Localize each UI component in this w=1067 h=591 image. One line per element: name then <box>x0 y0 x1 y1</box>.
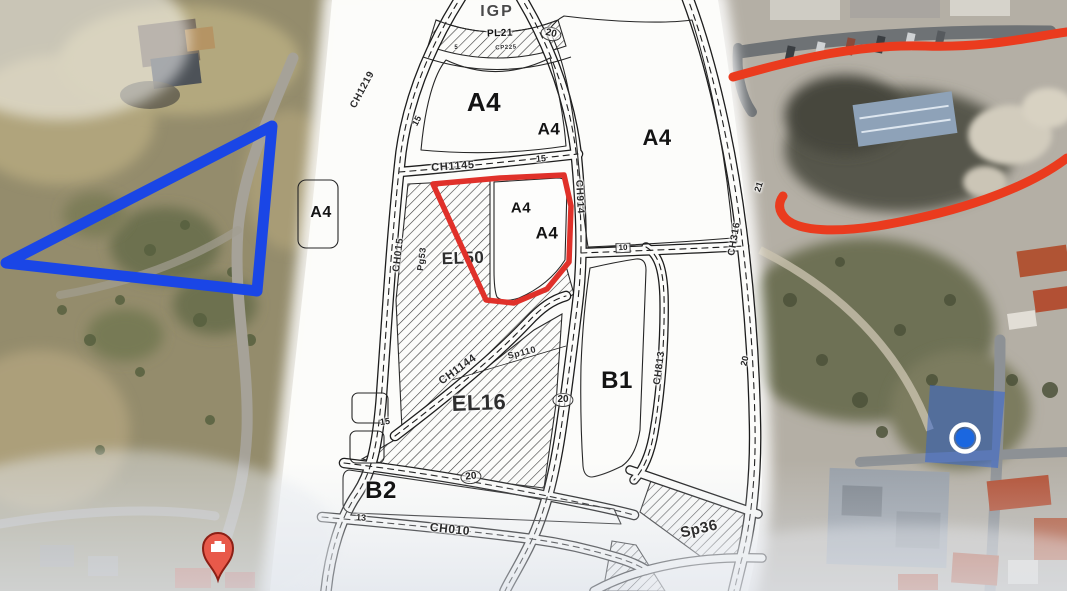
map-pin[interactable] <box>203 533 233 580</box>
map-canvas: IGPPL21A4A4A4A4A4A4B1B2EL50EL16Sp36 CH11… <box>0 0 1067 591</box>
blue-triangle-annotation <box>6 126 272 291</box>
selected-location-marker[interactable] <box>952 425 979 452</box>
red-route-line <box>733 32 1067 230</box>
annotations-layer <box>0 0 1067 591</box>
red-parcel-outline <box>433 175 571 303</box>
